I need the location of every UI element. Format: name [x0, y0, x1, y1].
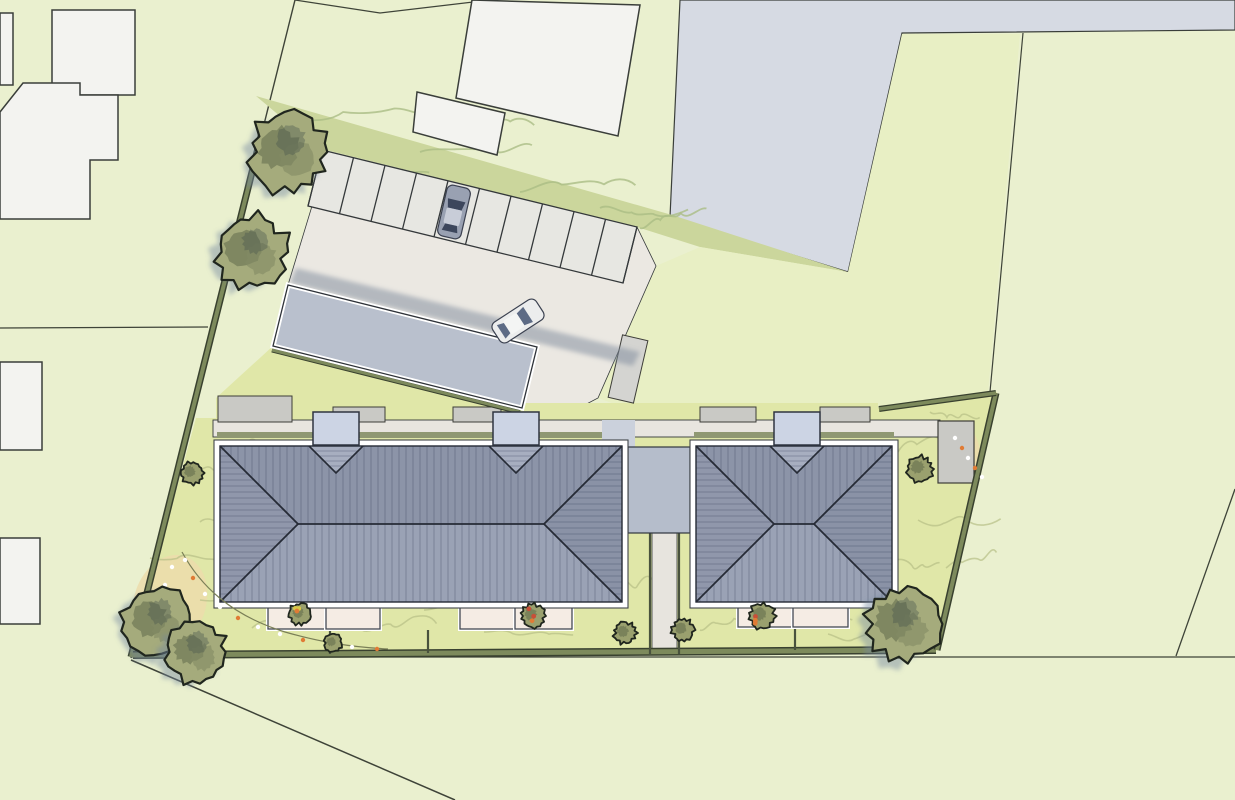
- flower-dot: [301, 638, 305, 642]
- apartment-building-east: [690, 412, 898, 608]
- neighbor-building: [0, 538, 40, 624]
- flower-dot: [183, 558, 187, 562]
- paving-pad: [820, 407, 870, 422]
- flower-dot: [256, 625, 260, 629]
- terrace: [326, 607, 380, 629]
- paving-pad: [218, 396, 292, 422]
- site-plan-svg: [0, 0, 1235, 800]
- site-plan-canvas: [0, 0, 1235, 800]
- garden-shed: [938, 421, 974, 483]
- flower-dot: [960, 446, 964, 450]
- flower-dot: [295, 609, 300, 614]
- flower-dot: [526, 606, 531, 611]
- flower-dot: [170, 565, 174, 569]
- shrub: [288, 603, 311, 626]
- neighbor-building: [0, 362, 42, 450]
- flower-dot: [191, 576, 195, 580]
- flower-dot: [278, 632, 282, 636]
- flower-dot: [973, 466, 977, 470]
- flower-dot: [753, 618, 758, 623]
- flower-dot: [218, 605, 222, 609]
- flower-dot: [531, 614, 536, 619]
- flower-dot: [350, 645, 354, 649]
- paving-pad: [700, 407, 756, 422]
- flower-dot: [953, 436, 957, 440]
- entrance-canopy: [774, 412, 820, 445]
- flower-dot: [980, 475, 984, 479]
- apartment-building-west: [214, 412, 628, 608]
- terrace: [793, 607, 848, 627]
- flower-dot: [203, 592, 207, 596]
- flower-dot: [236, 616, 240, 620]
- terrace: [460, 607, 515, 629]
- entrance-canopy: [493, 412, 539, 445]
- garden-path: [652, 533, 677, 655]
- entrance-canopy: [313, 412, 359, 445]
- flower-dot: [530, 618, 535, 623]
- flower-dot: [966, 456, 970, 460]
- connector-block: [628, 447, 690, 533]
- shrub: [324, 634, 342, 652]
- neighbor-building: [0, 13, 13, 85]
- flower-dot: [375, 647, 379, 651]
